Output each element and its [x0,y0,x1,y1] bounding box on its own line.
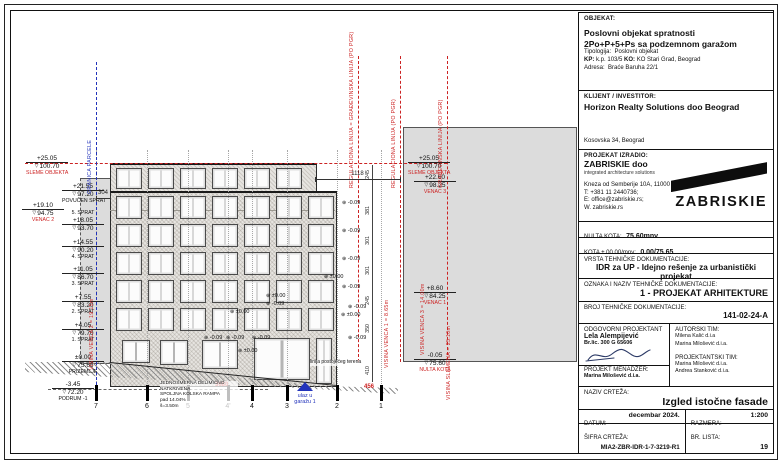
spot-elevation: ⊕ ±0.00 [324,274,343,280]
spot-point-icon: ⊕ [342,200,346,206]
grid-axis-label: 7 [87,403,105,410]
spot-point-icon: ⊕ [226,335,230,341]
window [244,224,270,247]
spot-elevation: ⊕ -0.09 [252,335,270,341]
chain-dimension: 350 [365,324,371,333]
window [116,224,142,247]
ramp-note-line: JEDNOSMERNA DELIMIČNO NATKRIVENA [160,381,238,392]
tipologija-line: Tipologija: Poslovni objekat [584,49,768,57]
section-team: ODGOVORNI PROJEKTANT Lela Alempijević Br… [579,324,773,387]
marker-elevation-value: +25.05 [26,155,68,163]
title-block: OBJEKAT: Poslovni objekat spratnosti 2Po… [578,12,774,454]
grid-axis-label: 6 [138,403,156,410]
razmera-cell: RAZMERA: 1:200 [686,410,773,423]
window [276,280,302,303]
marker-level-label: 3. SPRAT [62,282,104,288]
storefront-window [160,340,188,365]
marker-level-label: 2. SPRAT [62,310,104,316]
dimension-text-red: 456 [364,384,374,390]
window [244,196,270,219]
dimension-line [96,198,110,199]
grid-axis-label: 1 [372,403,390,410]
oznaka-value: 1 - PROJEKAT ARHITEKTURE [584,288,768,298]
teams-cell: AUTORSKI TIM: Milena Kalić d.i.a Marina … [670,324,773,386]
lista-value: 19 [691,444,768,451]
spot-elevation: ⊕ -0.09 [342,228,360,234]
objekat-title-2: 2Po+P+5+Ps sa podzemnom garažom [584,39,768,50]
window [308,252,334,275]
marker-elevation-value: +4.05 [62,322,104,330]
elevation-marker: +4.05▽79.701. SPRAT [62,322,104,343]
klijent-label: KLIJENT / INVESTITOR: [584,94,768,100]
ko-value: KO Stari Grad, Beograd [637,57,701,63]
terrain-note: linija postojećeg terena [310,360,361,366]
window [212,224,238,247]
window [180,224,206,247]
section-kota: KOTA ± 00.00/mnv: 0.00/75.65 [579,238,773,254]
broj-value: 141-02-24-A [584,311,768,320]
storefront-window [202,340,238,369]
window [116,196,142,219]
marker-elevation-value: +7.55 [62,294,104,302]
window [148,308,174,331]
section-sifra-lista: ŠIFRA CRTEŽA:MIA2-ZBR-IDR-1-7-3219-R1 BR… [579,424,773,453]
spot-point-icon: ⊕ [238,348,242,354]
height-annotation: VISINA VENCA 3 = 14.00m [420,225,426,355]
elevation-marker: +14.55▽90.204. SPRAT [62,239,104,260]
spot-elevation: ⊕ -0.09 [342,200,360,206]
elevation-marker: 5. SPRAT+18.05▽93.70 [62,211,104,232]
window [116,280,142,303]
dimension-tick [400,177,401,182]
marker-kota-value: 93.70 [77,225,93,233]
grid-axis-tick [251,385,254,401]
grid-axis-line [337,150,338,384]
elevation-marker: +19.10▽94.75VENAC 2 [22,202,64,223]
spot-point-icon: ⊕ [266,301,270,307]
marker-level-label: VENAC 2 [22,218,64,224]
window [116,168,142,189]
window [244,168,270,189]
marker-elevation-value: +18.05 [62,217,104,225]
boundary-line-label: GRAĐEVINSKA LINIJA (PO PGR) [438,58,444,188]
grid-axis-tick [95,385,98,401]
window [276,308,302,331]
elevation-marker: ±0.00▽75.65PRIZEMLJE [62,354,104,375]
ramp-note: JEDNOSMERNA DELIMIČNO NATKRIVENASPOLJNA … [160,381,238,409]
section-datum-razmera: DATUM: decembar 2024. RAZMERA: 1:200 [579,410,773,424]
marker-elevation-value: +22.60 [414,174,456,182]
window [308,224,334,247]
autorski-member: Marina Milošević d.i.a. [675,341,768,348]
kp-value: k.p. 103/5 [596,57,622,63]
company-logo: ZABRISKIE [667,162,767,210]
kp-label: KP: [584,57,594,63]
adresa-value: Braće Baruha 22/1 [608,65,658,71]
tipologija-value: Poslovni objekat [614,49,658,55]
window [116,252,142,275]
sifra-cell: ŠIFRA CRTEŽA:MIA2-ZBR-IDR-1-7-3219-R1 [579,424,686,453]
projektantski-member: Andrea Stanković d.i.a. [675,368,768,375]
marker-level-label: PODRUM -1 [52,397,94,403]
garage-entrance-note-line: garažu 1 [287,399,323,405]
height-annotation: VISINA VENCA 2 = 19.15m [89,248,95,370]
zabriskie-logo-icon [671,162,767,192]
height-annotation: VISINA SLEMENA = 25.10m [446,255,452,400]
section-broj: BROJ TEHNIČKE DOKUMENTACIJE: 141-02-24-A [579,302,773,324]
datum-value: decembar 2024. [629,412,680,419]
marker-elevation-value: +19.10 [22,202,64,210]
spot-elevation: ⊕ ±0.00 [266,293,285,299]
window [244,280,270,303]
grid-axis-tick [146,385,149,401]
spot-point-icon: ⊕ [348,335,352,341]
section-nulta-kota: NULTA KOTA: 75.60mnv [579,222,773,238]
spot-elevation: ⊕ ±0.00 [341,312,360,318]
window [276,252,302,275]
spot-elevation: ⊕ ±0.00 [230,309,249,315]
window [116,308,142,331]
spot-elevation: ⊕ -0.09 [204,335,222,341]
window [148,224,174,247]
boundary-line [400,56,401,362]
section-naziv: NAZIV CRTEŽA: Izgled istočne fasade [579,387,773,410]
kp-line: KP: k.p. 103/5 KO: KO Stari Grad, Beogra… [584,57,768,65]
window [180,280,206,303]
storefront-window [122,340,150,363]
window [276,196,302,219]
spot-elevation: ⊕ ±0.00 [238,348,257,354]
spot-point-icon: ⊕ [348,304,352,310]
window [148,280,174,303]
window [180,168,206,189]
adresa-label: Adresa: [584,65,605,71]
garage-entrance-note: ulaz ugaražu 1 [287,393,323,406]
sifra-value: MIA2-ZBR-IDR-1-7-3219-R1 [584,444,680,451]
elevation-marker: -3.45▽72.20PODRUM -1 [52,381,94,402]
dimension-text: 1118 [315,171,400,177]
zabriskie-logo-text: ZABRISKIE [667,194,767,210]
window [212,252,238,275]
dimension-text: 304 [96,190,110,196]
chain-dimension: 245 [365,170,371,179]
spot-point-icon: ⊕ [252,335,256,341]
section-izradio: PROJEKAT IZRADIO: ZABRISKIE doo integrat… [579,150,773,222]
spot-point-icon: ⊕ [342,284,346,290]
spot-elevation: ⊕ -0.09 [266,301,284,307]
level-triangle-icon: ▽ [72,225,76,233]
elevation-marker: +11.05▽86.703. SPRAT [62,266,104,287]
ko-label: KO: [624,57,635,63]
chain-dimension: 410 [365,366,371,375]
window [212,168,238,189]
elevation-marker: +7.55▽83.202. SPRAT [62,294,104,315]
elevation-marker: +25.05▽100.70SLEME OBJEKTA [26,155,68,176]
spot-elevation: ⊕ -0.09 [342,284,360,290]
odgovorni-name: Lela Alempijević [584,333,664,340]
marker-elevation-value: ±0.00 [62,354,104,362]
window [212,196,238,219]
window [276,168,302,189]
boundary-line-label: REGULACIONA LINIJA (PO PGR) [391,58,397,188]
spot-point-icon: ⊕ [342,256,346,262]
marker-level-label: SLEME OBJEKTA [26,171,68,177]
spot-elevation: ⊕ -0.09 [348,335,366,341]
spot-elevation: ⊕ -0.09 [342,256,360,262]
section-oznaka: OZNAKA I NAZIV TEHNIČKE DOKUMENTACIJE: 1… [579,279,773,302]
projektantski-member: Marina Milošević d.i.a. [675,361,768,368]
section-objekat: OBJEKAT: Poslovni objekat spratnosti 2Po… [579,13,773,91]
responsible-designer-cell: ODGOVORNI PROJEKTANT Lela Alempijević Br… [579,324,670,386]
window [276,224,302,247]
chain-dimension: 301 [365,236,371,245]
grid-axis-tick [336,385,339,401]
dimension-chain-line [372,165,373,382]
window [212,280,238,303]
window [244,252,270,275]
drawing-sheet: { "titleblock": { "objekat_label": "OBJE… [0,0,782,464]
spot-point-icon: ⊕ [341,312,345,318]
boundary-line-label: REGULACIONA LINIJA = GRAĐEVINSKA LINIJA … [349,58,355,188]
spot-point-icon: ⊕ [266,293,270,299]
lista-label: BR. LISTA: [691,435,721,441]
kiosk-roof-icon [297,382,313,391]
window [148,252,174,275]
chain-dimension: 245 [365,296,371,305]
chain-dimension: 381 [365,206,371,215]
datum-cell: DATUM: decembar 2024. [579,410,686,423]
marker-level-label: PRIZEMLJE [62,370,104,376]
klijent-adresa: Kosovska 34, Beograd [584,138,644,146]
grid-axis-line [381,150,382,384]
marker-elevation-value: -3.45 [52,381,94,389]
dimension-tick [110,196,111,201]
klijent-name: Horizon Realty Solutions doo Beograd [584,102,768,113]
elevation-drawing-area: +25.05▽100.70SLEME OBJEKTA+21.55▽97.20PO… [10,10,566,452]
marker-level-label: 4. SPRAT [62,255,104,261]
ramp-note-line: š=3.50m [160,404,238,410]
marker-level-label: 1. SPRAT [62,338,104,344]
dimension-tick [315,177,316,182]
window [148,196,174,219]
drawing-title: Izgled istočne fasade [584,396,768,408]
grid-axis-tick [380,385,383,401]
marker-elevation-value: +11.05 [62,266,104,274]
window [180,252,206,275]
window [180,308,206,331]
window [308,308,334,331]
height-annotation: VISINA VENCA 1 = 8.65m [384,300,390,368]
dimension-tick [96,196,97,201]
lista-cell: BR. LISTA:19 [686,424,773,453]
marker-level-label: VENAC 3 [414,190,456,196]
elevation-marker: +22.60▽98.25VENAC 3 [414,174,456,195]
tipologija-label: Tipologija: [584,49,611,55]
razmera-value: 1:200 [751,412,768,419]
grid-axis-line [287,150,288,384]
adresa-line: Adresa: Braće Baruha 22/1 [584,65,768,73]
section-klijent: KLIJENT / INVESTITOR: Horizon Realty Sol… [579,91,773,150]
objekat-title-1: Poslovni objekat spratnosti [584,28,768,39]
autorski-member: Milena Kalić d.i.a [675,333,768,340]
spot-point-icon: ⊕ [230,309,234,315]
menadzer-name: Marina Milošević d.i.a. [584,373,664,380]
marker-level-label: POVUČEN SPRAT [62,199,104,205]
grid-axis-label: 2 [328,403,346,410]
section-vrsta: VRSTA TEHNIČKE DOKUMENTACIJE: IDR za UP … [579,254,773,279]
grid-axis-line [188,150,189,384]
window [308,280,334,303]
window [148,168,174,189]
marker-kota-row: ▽93.70 [62,225,104,233]
window [308,196,334,219]
grid-axis-label: 4 [243,403,261,410]
signature-image [584,346,654,364]
spot-point-icon: ⊕ [342,228,346,234]
storefront-window [254,338,310,380]
spot-elevation: ⊕ -0.09 [226,335,244,341]
window [180,196,206,219]
spot-point-icon: ⊕ [204,335,208,341]
grid-axis-line [147,150,148,384]
boundary-line-label: GRANICA PARCELE [87,64,93,194]
marker-elevation-value: +14.55 [62,239,104,247]
grid-axis-line [228,150,229,384]
spot-elevation: ⊕ -0.09 [348,304,366,310]
chain-dimension: 301 [365,266,371,275]
dimension-line [315,179,400,180]
sifra-label: ŠIFRA CRTEŽA: [584,435,629,441]
spot-point-icon: ⊕ [324,274,328,280]
